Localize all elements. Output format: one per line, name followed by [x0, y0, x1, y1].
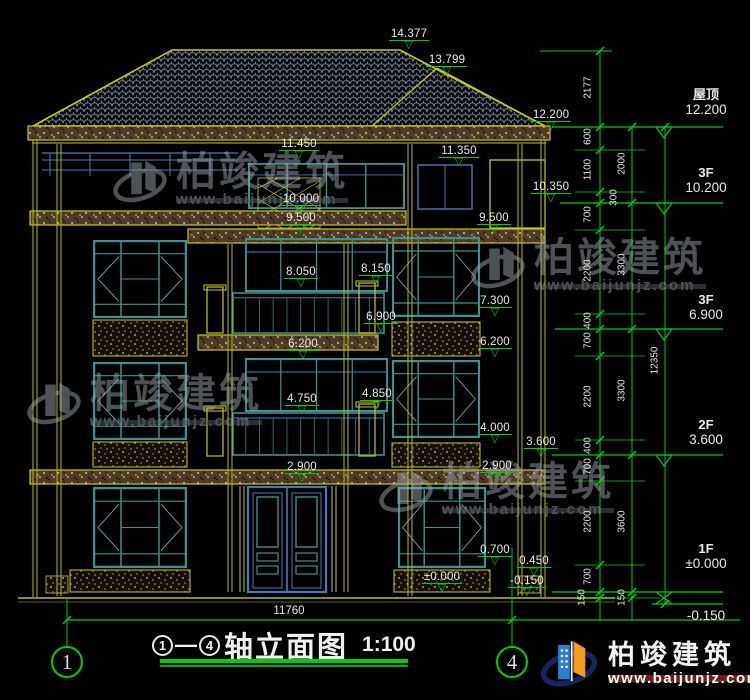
- level-marker: 9.500: [466, 212, 522, 233]
- dim-text: 2000: [617, 142, 628, 186]
- brand-name: 柏竣建筑: [608, 640, 750, 670]
- brand-logo-icon: [538, 634, 600, 692]
- level-marker: 11.450: [271, 138, 327, 159]
- axis-bubble-1: 1: [51, 646, 83, 678]
- level-marker: 6.200: [467, 336, 523, 357]
- level-marker: 2.900: [274, 461, 330, 482]
- level-marker: 2.900: [469, 460, 525, 481]
- axis-bubble-4: 4: [496, 646, 528, 678]
- cad-elevation-drawing: 柏竣建筑 www.baijunjz.com 柏竣建筑 www.baijunjz.…: [0, 0, 750, 700]
- level-marker: 9.500: [273, 212, 329, 233]
- dim-text: 3300: [617, 243, 628, 287]
- dim-text: 700: [583, 445, 594, 489]
- title-axis-from: 1: [152, 635, 173, 656]
- level-marker: 7.300: [467, 295, 523, 316]
- level-marker: 11.350: [431, 145, 487, 166]
- title-axis-to: 4: [199, 635, 220, 656]
- floor-label-2f: 2F3.600: [664, 417, 748, 448]
- level-marker: 0.450: [506, 555, 562, 576]
- level-marker: 4.850: [349, 388, 405, 409]
- dim-text: 700: [583, 319, 594, 363]
- floor-label-minus-150: -0.150: [664, 608, 748, 624]
- floor-label-3f-6900: 3F6.900: [664, 292, 748, 323]
- level-marker: 14.377: [381, 28, 437, 49]
- level-marker: 3.600: [513, 436, 569, 457]
- dim-text: 150: [617, 576, 628, 620]
- dim-text: 1100: [583, 148, 594, 192]
- floor-label-3f: 3F10.200: [664, 165, 748, 196]
- dim-text: 2177: [583, 66, 594, 110]
- level-marker: 10.000: [273, 193, 329, 214]
- level-marker: ±0.000: [414, 571, 470, 592]
- level-marker: 13.799: [419, 54, 475, 75]
- level-marker: 8.150: [348, 263, 404, 284]
- dim-text: 2200: [583, 375, 594, 419]
- width-dim-text: 11760: [259, 605, 319, 617]
- slab-band-10000: [30, 211, 406, 225]
- entrance-door: [240, 486, 336, 592]
- dim-text: 3300: [617, 369, 628, 413]
- level-marker: 12.200: [523, 109, 579, 130]
- dim-text: 2200: [583, 500, 594, 544]
- level-marker: 4.750: [274, 393, 330, 414]
- level-marker: 10.350: [523, 181, 579, 202]
- title-dash: —: [175, 632, 197, 658]
- ground-line: [18, 598, 615, 602]
- dim-text: 150: [577, 576, 588, 620]
- elevation-canvas: [0, 0, 750, 700]
- dim-text: 3600: [617, 500, 628, 544]
- title-underline: [160, 659, 408, 663]
- level-marker: 8.050: [273, 266, 329, 287]
- level-marker: -0.150: [499, 575, 555, 596]
- dim-text-total: 12350: [650, 339, 661, 383]
- title-underline-2: [160, 665, 408, 667]
- title-scale: 1:100: [362, 633, 416, 657]
- brand-footer: 柏竣建筑 www.baijunjz.com: [538, 634, 750, 692]
- level-marker: 6.900: [353, 311, 409, 332]
- brand-url: www.baijunjz.com: [608, 670, 750, 687]
- floor-label-roof: 屋顶12.200: [664, 87, 748, 118]
- level-marker: 6.200: [275, 338, 331, 359]
- floor-label-1f: 1F±0.000: [664, 541, 748, 572]
- dim-text: 2200: [583, 249, 594, 293]
- dim-text: 700: [583, 193, 594, 237]
